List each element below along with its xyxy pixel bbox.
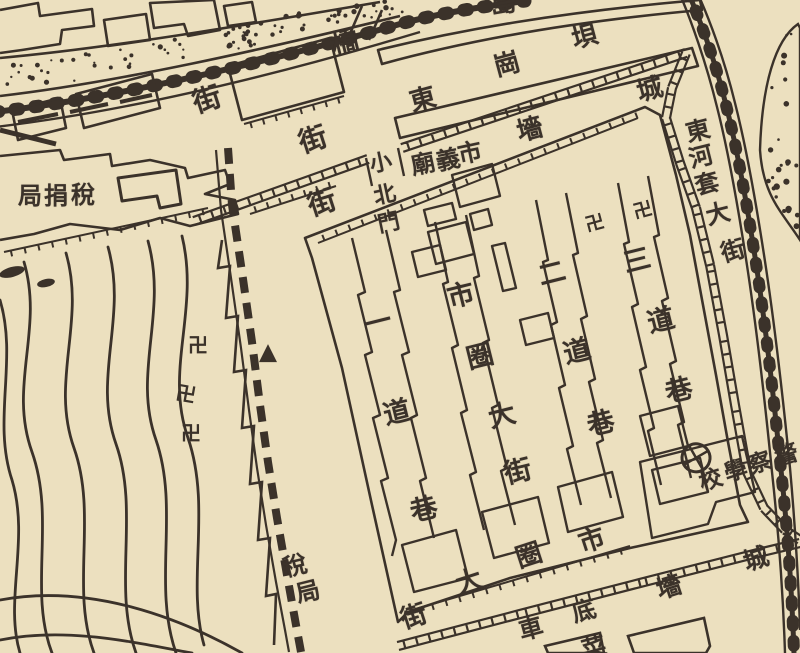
map-svg	[0, 0, 800, 653]
map-canvas: 街橋島東崗垻城墻街街小北門義廟市東河套大街一道巷市圈大街二道巷三道巷市圈大街城墻…	[0, 0, 800, 653]
